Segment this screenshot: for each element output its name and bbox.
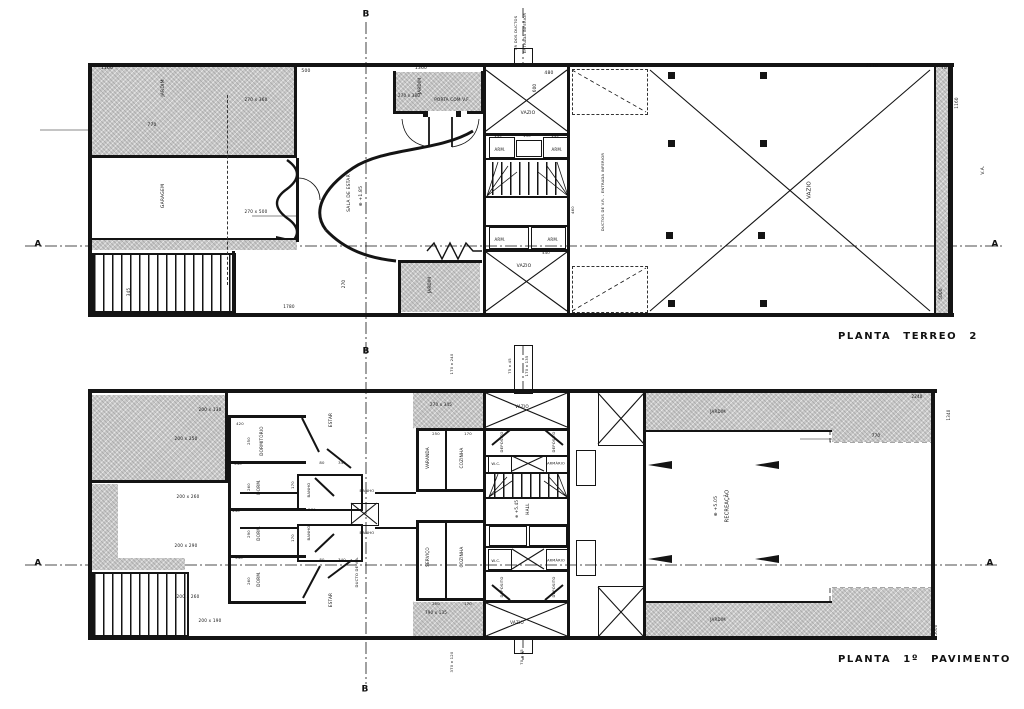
room-label-vazio: VAZIO — [807, 181, 813, 199]
wall — [645, 430, 832, 432]
section-marker-a: A — [986, 560, 993, 569]
room-label-deposito: DEPÓSITO — [552, 576, 556, 597]
section-marker-b: B — [361, 686, 368, 695]
cone-column-marker — [755, 461, 779, 469]
room-label-arm: ARM. — [494, 238, 505, 242]
dim-label: 145 — [494, 134, 502, 138]
dim-label: 2170 — [866, 65, 878, 70]
cone-column-marker — [648, 555, 672, 563]
room-label-hall: HALL — [526, 503, 530, 514]
curved-wall — [320, 131, 473, 230]
dim-label: 1160 — [101, 67, 113, 72]
dim-label: 170 — [291, 481, 295, 489]
room-label-banho: BANHO — [307, 526, 311, 541]
dim-label: 170 — [291, 534, 295, 542]
wall — [232, 251, 235, 313]
dim-label: 340 — [338, 558, 346, 562]
room-label-armario: ARMÁRIO — [547, 462, 565, 466]
dim-label: 170 x 240 — [450, 354, 454, 375]
wall — [88, 636, 937, 640]
dim-label: 340 — [338, 461, 346, 465]
wall — [645, 601, 832, 603]
wall — [483, 158, 570, 160]
dim-label: 80 — [319, 558, 324, 562]
room-label-wc: W.C. — [491, 559, 500, 563]
dim-label: 270 x 345 — [430, 403, 452, 407]
dim-label: 600 — [533, 84, 537, 93]
dim-label: 270 x 500 — [245, 210, 268, 214]
plan1-title: PLANTA TERREO 2 — [838, 331, 978, 342]
dim-label: 420 — [233, 601, 241, 605]
void-x-large — [650, 70, 930, 311]
room-label-banho: BANHO — [360, 531, 375, 535]
room-label-jardim: JARDIM — [710, 410, 726, 414]
dim-label: 200 x 190 — [199, 619, 222, 623]
room-label-deposito: DEPÓSITO — [500, 576, 504, 597]
wall — [90, 238, 297, 240]
wall — [483, 196, 570, 198]
wall — [416, 520, 483, 523]
dim-label: 200 x 250 — [175, 437, 198, 441]
wall — [416, 520, 419, 600]
level-marker: ⊕ +5.05 — [715, 496, 720, 516]
room-label-cozinha: COZINHA — [460, 448, 464, 469]
room-label-vazio: VAZIO — [521, 112, 536, 117]
dim-label: 250 — [432, 602, 440, 606]
dim-label: 1160 — [955, 97, 959, 108]
corner-box — [598, 392, 646, 446]
note-label: DUCTOS DE V.R. - ENTRADA INFERIOR — [601, 153, 605, 231]
closet-box — [516, 140, 542, 157]
room-label-armario: ARMÁRIO — [547, 559, 565, 563]
column-marker — [668, 72, 675, 79]
wall — [395, 111, 424, 114]
wall — [483, 600, 570, 603]
wall — [228, 415, 306, 418]
wall — [486, 570, 567, 572]
dim-label: 70 x 45 — [520, 649, 524, 665]
dim-label: 270 — [342, 280, 346, 289]
wall — [483, 249, 570, 252]
hatch-terrace — [413, 602, 483, 638]
room-label-servico: SERVIÇO — [426, 547, 430, 567]
dim-label: 460 — [571, 206, 575, 214]
section-marker-b: B — [362, 11, 369, 20]
dim-label: 440 — [542, 251, 550, 255]
column-marker — [760, 300, 767, 307]
hatch-right-wall — [936, 67, 948, 313]
hatch-jardim-ext — [832, 588, 931, 638]
dim-label: 790 x 135 — [425, 611, 447, 615]
dim-label: 270 x 380 — [398, 94, 420, 98]
stairs-exterior — [92, 253, 236, 313]
wall — [375, 527, 416, 529]
dim-label: 170 — [464, 602, 472, 606]
dim-label: 420 — [236, 422, 244, 426]
zigzag-joint — [427, 243, 482, 259]
column-marker — [666, 232, 673, 239]
dim-label: 345 — [127, 288, 131, 297]
dim-label: 540 — [235, 556, 243, 560]
dim-label: 500 — [301, 70, 310, 75]
dim-label: 440 — [232, 509, 240, 513]
wall — [398, 260, 401, 314]
dim-label: 130 — [523, 134, 531, 138]
wall — [90, 155, 297, 158]
wall — [393, 71, 396, 114]
dim-label: 5000 — [934, 625, 938, 636]
column-marker — [760, 140, 767, 147]
dim-label: 70 — [941, 66, 947, 70]
section-marker-a: A — [34, 560, 41, 569]
dim-label: 170 x 135 — [525, 356, 529, 377]
dim-label: 1780 — [283, 305, 294, 309]
dim-label: 270 x 360 — [245, 98, 268, 102]
dim-label: 250 — [247, 437, 251, 445]
curved-wall-tail — [326, 230, 396, 261]
hatch-strip — [92, 558, 185, 570]
room-label-dormitorio: DORMITÓRIO — [260, 426, 264, 456]
room-label-wc: W.C. — [491, 462, 500, 466]
door-post — [456, 111, 461, 117]
door-arc — [298, 178, 320, 200]
column-marker — [668, 140, 675, 147]
dim-label: 770 — [872, 434, 881, 438]
garden-dashed-boundary — [830, 430, 931, 601]
wall — [948, 63, 953, 317]
closet-box — [529, 526, 567, 546]
dim-label: 200 x 130 — [199, 408, 222, 412]
room-label-jardim: JARDIM — [162, 79, 167, 96]
wall — [416, 428, 483, 431]
wall — [296, 158, 299, 242]
wall — [240, 492, 297, 494]
room-label-arm: ARM. — [494, 148, 505, 152]
room-label-deposito: DEPÓSITO — [552, 431, 556, 452]
wall — [88, 63, 92, 317]
column-marker — [758, 232, 765, 239]
wall — [398, 260, 482, 263]
room-label-estar: ESTAR — [329, 413, 333, 427]
room-label-vazio: VAZIO — [515, 405, 529, 409]
stairs-main — [492, 162, 564, 195]
wall — [88, 313, 954, 317]
room-label-garagem: GARAGEM — [162, 184, 167, 208]
wall — [416, 428, 419, 492]
note-label: VR DOS DUCTOS — [514, 16, 518, 51]
hatch-entry-jardim — [395, 72, 481, 111]
room-label-dorm: DORM. — [257, 479, 261, 494]
wall — [934, 67, 936, 313]
dim-label: 250 — [432, 432, 440, 436]
closet-box — [489, 526, 527, 546]
scalloped-wall — [277, 160, 297, 246]
wall — [375, 492, 416, 494]
wall — [88, 389, 92, 640]
dim-label: 370 x 120 — [450, 652, 454, 673]
hatch-terrace — [413, 392, 483, 428]
section-marker-b: B — [362, 348, 369, 357]
wall — [483, 428, 570, 431]
dim-label: 80 — [319, 461, 324, 465]
room-label-dorm: DORM. — [257, 571, 261, 586]
plan2-title: PLANTA 1º PAVIMENTO — [838, 654, 1011, 665]
hatch-patch-jardim — [400, 262, 480, 312]
dim-label: 260 — [247, 483, 251, 491]
duct-box — [351, 503, 379, 526]
room-label-varanda: VARANDA — [426, 447, 430, 469]
dim-label: 5000 — [939, 288, 943, 299]
stairs-main — [494, 474, 562, 497]
dim-label: 1340 — [947, 410, 951, 421]
wall — [931, 389, 935, 640]
note-label: DUCTO DE V.A. — [355, 556, 359, 587]
room-label-estar: ESTAR — [329, 593, 333, 607]
wall — [92, 480, 228, 483]
roof-projection — [572, 266, 648, 313]
column-marker — [760, 72, 767, 79]
level-marker: ⊕ +1.85 — [360, 186, 365, 206]
counter-box — [576, 450, 596, 486]
wall — [88, 389, 937, 393]
wall — [445, 522, 447, 598]
dim-label: 290 — [247, 530, 251, 538]
stairs-exterior — [92, 572, 189, 637]
room-label-vazio: VAZIO — [510, 621, 524, 625]
room-label-jardim: JARDIM — [418, 78, 422, 94]
room-label-recreacao: RECREAÇÃO — [726, 490, 731, 523]
dim-label: 75 x 45 — [508, 358, 512, 374]
note-label: V.A. — [982, 165, 987, 174]
dim-label: 170 — [464, 432, 472, 436]
section-marker-a: A — [34, 241, 41, 250]
dim-label: 770 — [147, 124, 156, 129]
room-label-jardim: JARDIM — [428, 277, 432, 293]
room-label-deposito: DEPÓSITO — [500, 431, 504, 452]
corner-box — [598, 586, 646, 640]
hatch-area-jardim — [92, 67, 294, 155]
dim-label: 2240 — [912, 395, 923, 399]
dim-label: 540 — [234, 462, 242, 466]
room-label-dorm: DORM. — [257, 525, 261, 540]
wall — [486, 497, 567, 499]
dim-label: 200 x 260 — [177, 495, 200, 499]
dim-label: 200 x 290 — [175, 544, 198, 548]
room-label-banho: BANHO — [360, 489, 375, 493]
projection-line — [227, 95, 228, 285]
wall — [486, 546, 567, 548]
roof-projection — [572, 69, 648, 115]
wall — [416, 489, 483, 492]
dim-label: 145 — [551, 134, 559, 138]
note-label: ENTRADA INFERIOR — [523, 13, 527, 53]
note-label: PORTA COM V.F. — [434, 98, 470, 102]
room-label-jardim: JARDIM — [710, 618, 726, 622]
room-label-banho: BANHO — [307, 483, 311, 498]
hatch-strip — [92, 484, 118, 558]
wall — [567, 67, 570, 315]
dim-label: 270 — [308, 508, 316, 512]
wall — [445, 431, 447, 489]
blueprint-canvas: PLANTA TERREO 2 PLANTA 1º PAVIMENTO 1160… — [0, 0, 1024, 709]
cone-column-marker — [648, 461, 672, 469]
dim-label: 1360 — [415, 67, 427, 72]
column-marker — [668, 300, 675, 307]
cone-column-marker — [755, 555, 779, 563]
hatch-strip — [92, 240, 297, 250]
wall — [240, 527, 297, 529]
dim-label: 260 — [247, 577, 251, 585]
room-label-arm: ARM. — [551, 148, 562, 152]
counter-box — [576, 540, 596, 576]
wall — [483, 67, 486, 315]
dim-label: 200 x 260 — [177, 595, 200, 599]
level-marker: ⊕ +5.45 — [515, 500, 519, 518]
hatch-jardim-ext — [832, 393, 931, 442]
wall — [294, 65, 297, 157]
room-label-sala-de-estar: SALA DE ESTAR — [348, 174, 353, 212]
wall — [416, 598, 483, 601]
room-label-vazio: VAZIO — [517, 265, 532, 270]
room-label-cozinha: COZINHA — [460, 547, 464, 568]
section-marker-a: A — [991, 241, 998, 250]
room-label-arm: ARM. — [547, 238, 558, 242]
dim-label: 480 — [544, 72, 553, 77]
